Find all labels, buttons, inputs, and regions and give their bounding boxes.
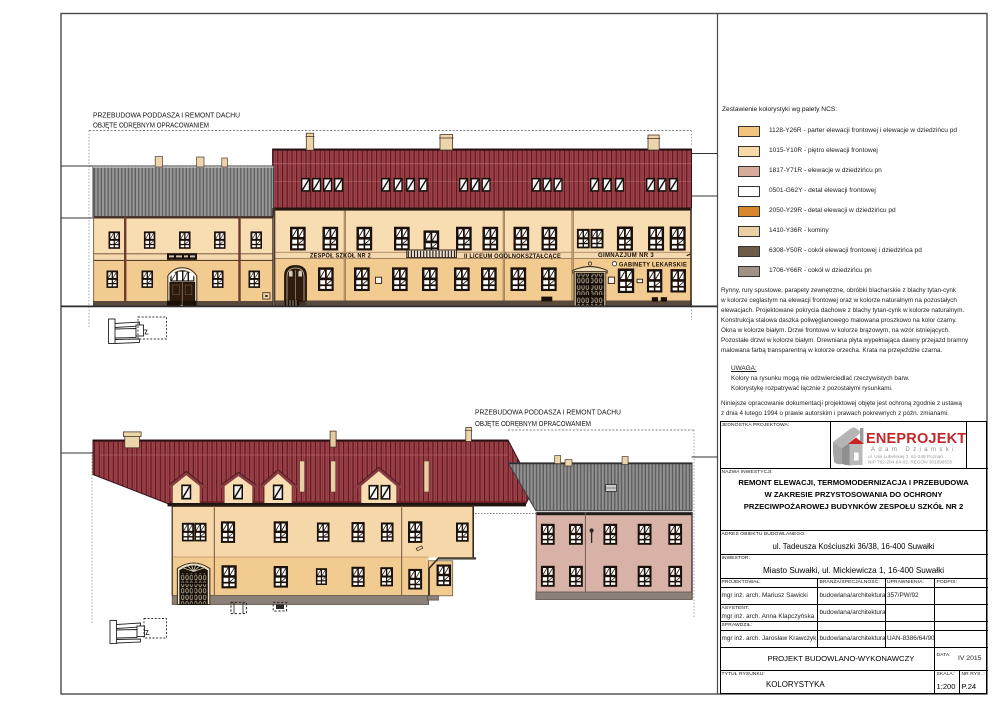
svg-text:GABINETY LEKARSKIE: GABINETY LEKARSKIE	[619, 262, 687, 268]
svg-text:Adam Dziamski: Adam Dziamski	[871, 447, 957, 453]
svg-text:PRZEBUDOWA PODDASZA I REMONT D: PRZEBUDOWA PODDASZA I REMONT DACHU	[475, 410, 621, 417]
svg-text:ul. Unii Lubelskiej 3, 61-249: ul. Unii Lubelskiej 3, 61-249 Poznań	[868, 454, 943, 459]
svg-text:OBJĘTE ODRĘBNYM OPRACOWANIEM: OBJĘTE ODRĘBNYM OPRACOWANIEM	[93, 123, 209, 130]
svg-text:ENEPROJEKT: ENEPROJEKT	[866, 431, 966, 447]
svg-text:OBJĘTE ODRĘBNYM OPRACOWANIEM: OBJĘTE ODRĘBNYM OPRACOWANIEM	[475, 421, 591, 428]
svg-text:NIP 782-204-64-03, REGON 30109: NIP 782-204-64-03, REGON 301098550	[868, 460, 953, 465]
svg-text:GIMNAZJUM NR 3: GIMNAZJUM NR 3	[598, 253, 654, 259]
svg-text:ZESPÓŁ SZKÓŁ NR 2: ZESPÓŁ SZKÓŁ NR 2	[310, 252, 371, 260]
svg-text:II LICEUM OGÓLNOKSZTAŁCĄCE: II LICEUM OGÓLNOKSZTAŁCĄCE	[464, 252, 561, 260]
svg-text:PRZEBUDOWA PODDASZA I REMONT D: PRZEBUDOWA PODDASZA I REMONT DACHU	[93, 113, 240, 120]
